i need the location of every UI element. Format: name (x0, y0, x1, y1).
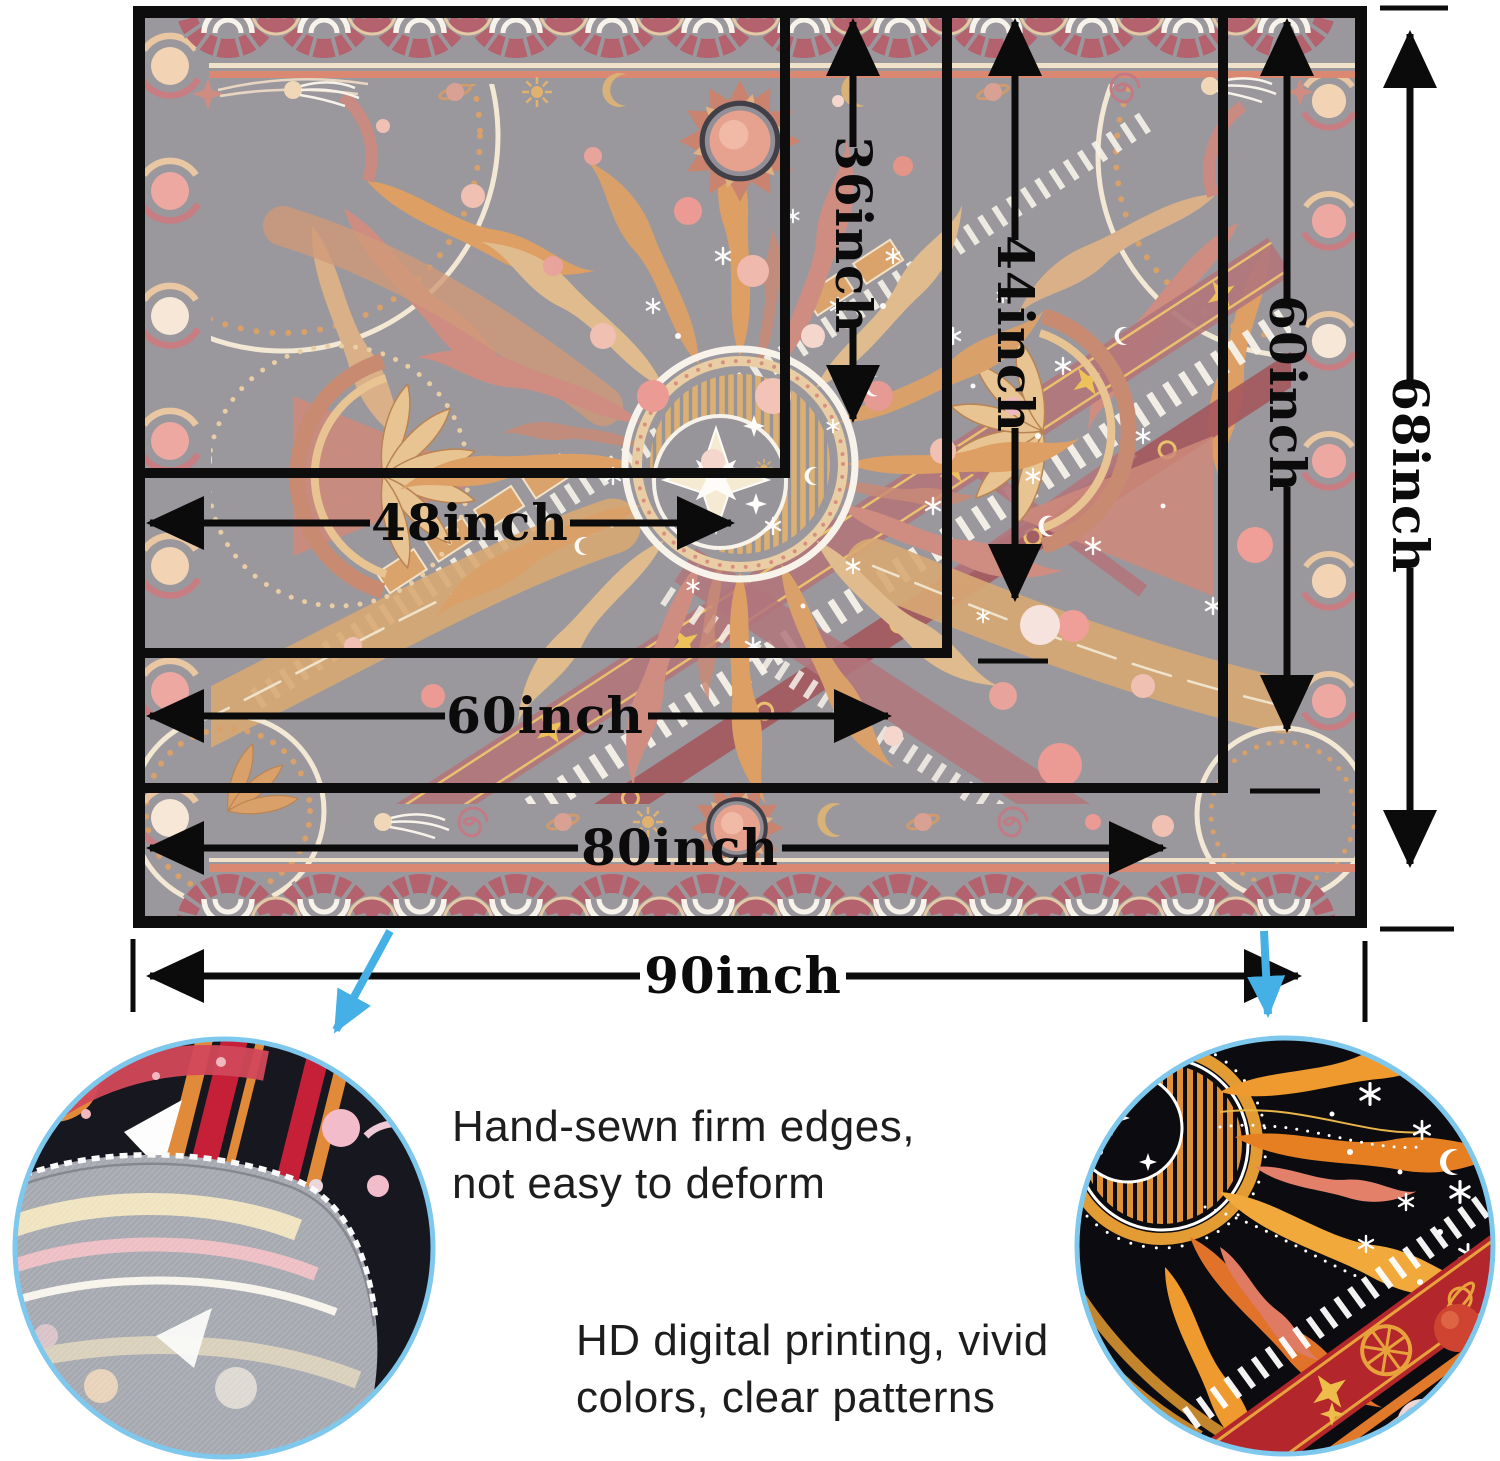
callout-arrow-right (1264, 931, 1268, 1014)
width-label-48inch: 48inch (360, 490, 580, 556)
feature-text-sewn-edges: Hand-sewn firm edges, not easy to deform (452, 1098, 922, 1212)
height-label-44inch: 44inch (982, 224, 1048, 444)
height-label-68inch: 68inch (1377, 365, 1443, 585)
callout-arrow-left (336, 931, 390, 1030)
height-label-36inch: 36inch (820, 125, 886, 345)
detail-circle-vivid-print (1070, 1032, 1498, 1460)
detail-circle-sewn-edge (6, 1036, 442, 1461)
width-label-80inch: 80inch (570, 815, 790, 881)
folded-fabric-corner (6, 1155, 377, 1461)
product-size-infographic: 48inch 60inch 80inch 90inch 36inch 44inc… (0, 0, 1500, 1461)
width-label-90inch: 90inch (633, 943, 853, 1009)
width-label-60inch: 60inch (435, 683, 655, 749)
tapestry-image (133, 6, 1367, 928)
feature-text-hd-printing: HD digital printing, vivid colors, clear… (576, 1312, 1116, 1426)
height-label-60inch: 60inch (1254, 284, 1320, 504)
top-fan-border (176, 6, 1367, 78)
